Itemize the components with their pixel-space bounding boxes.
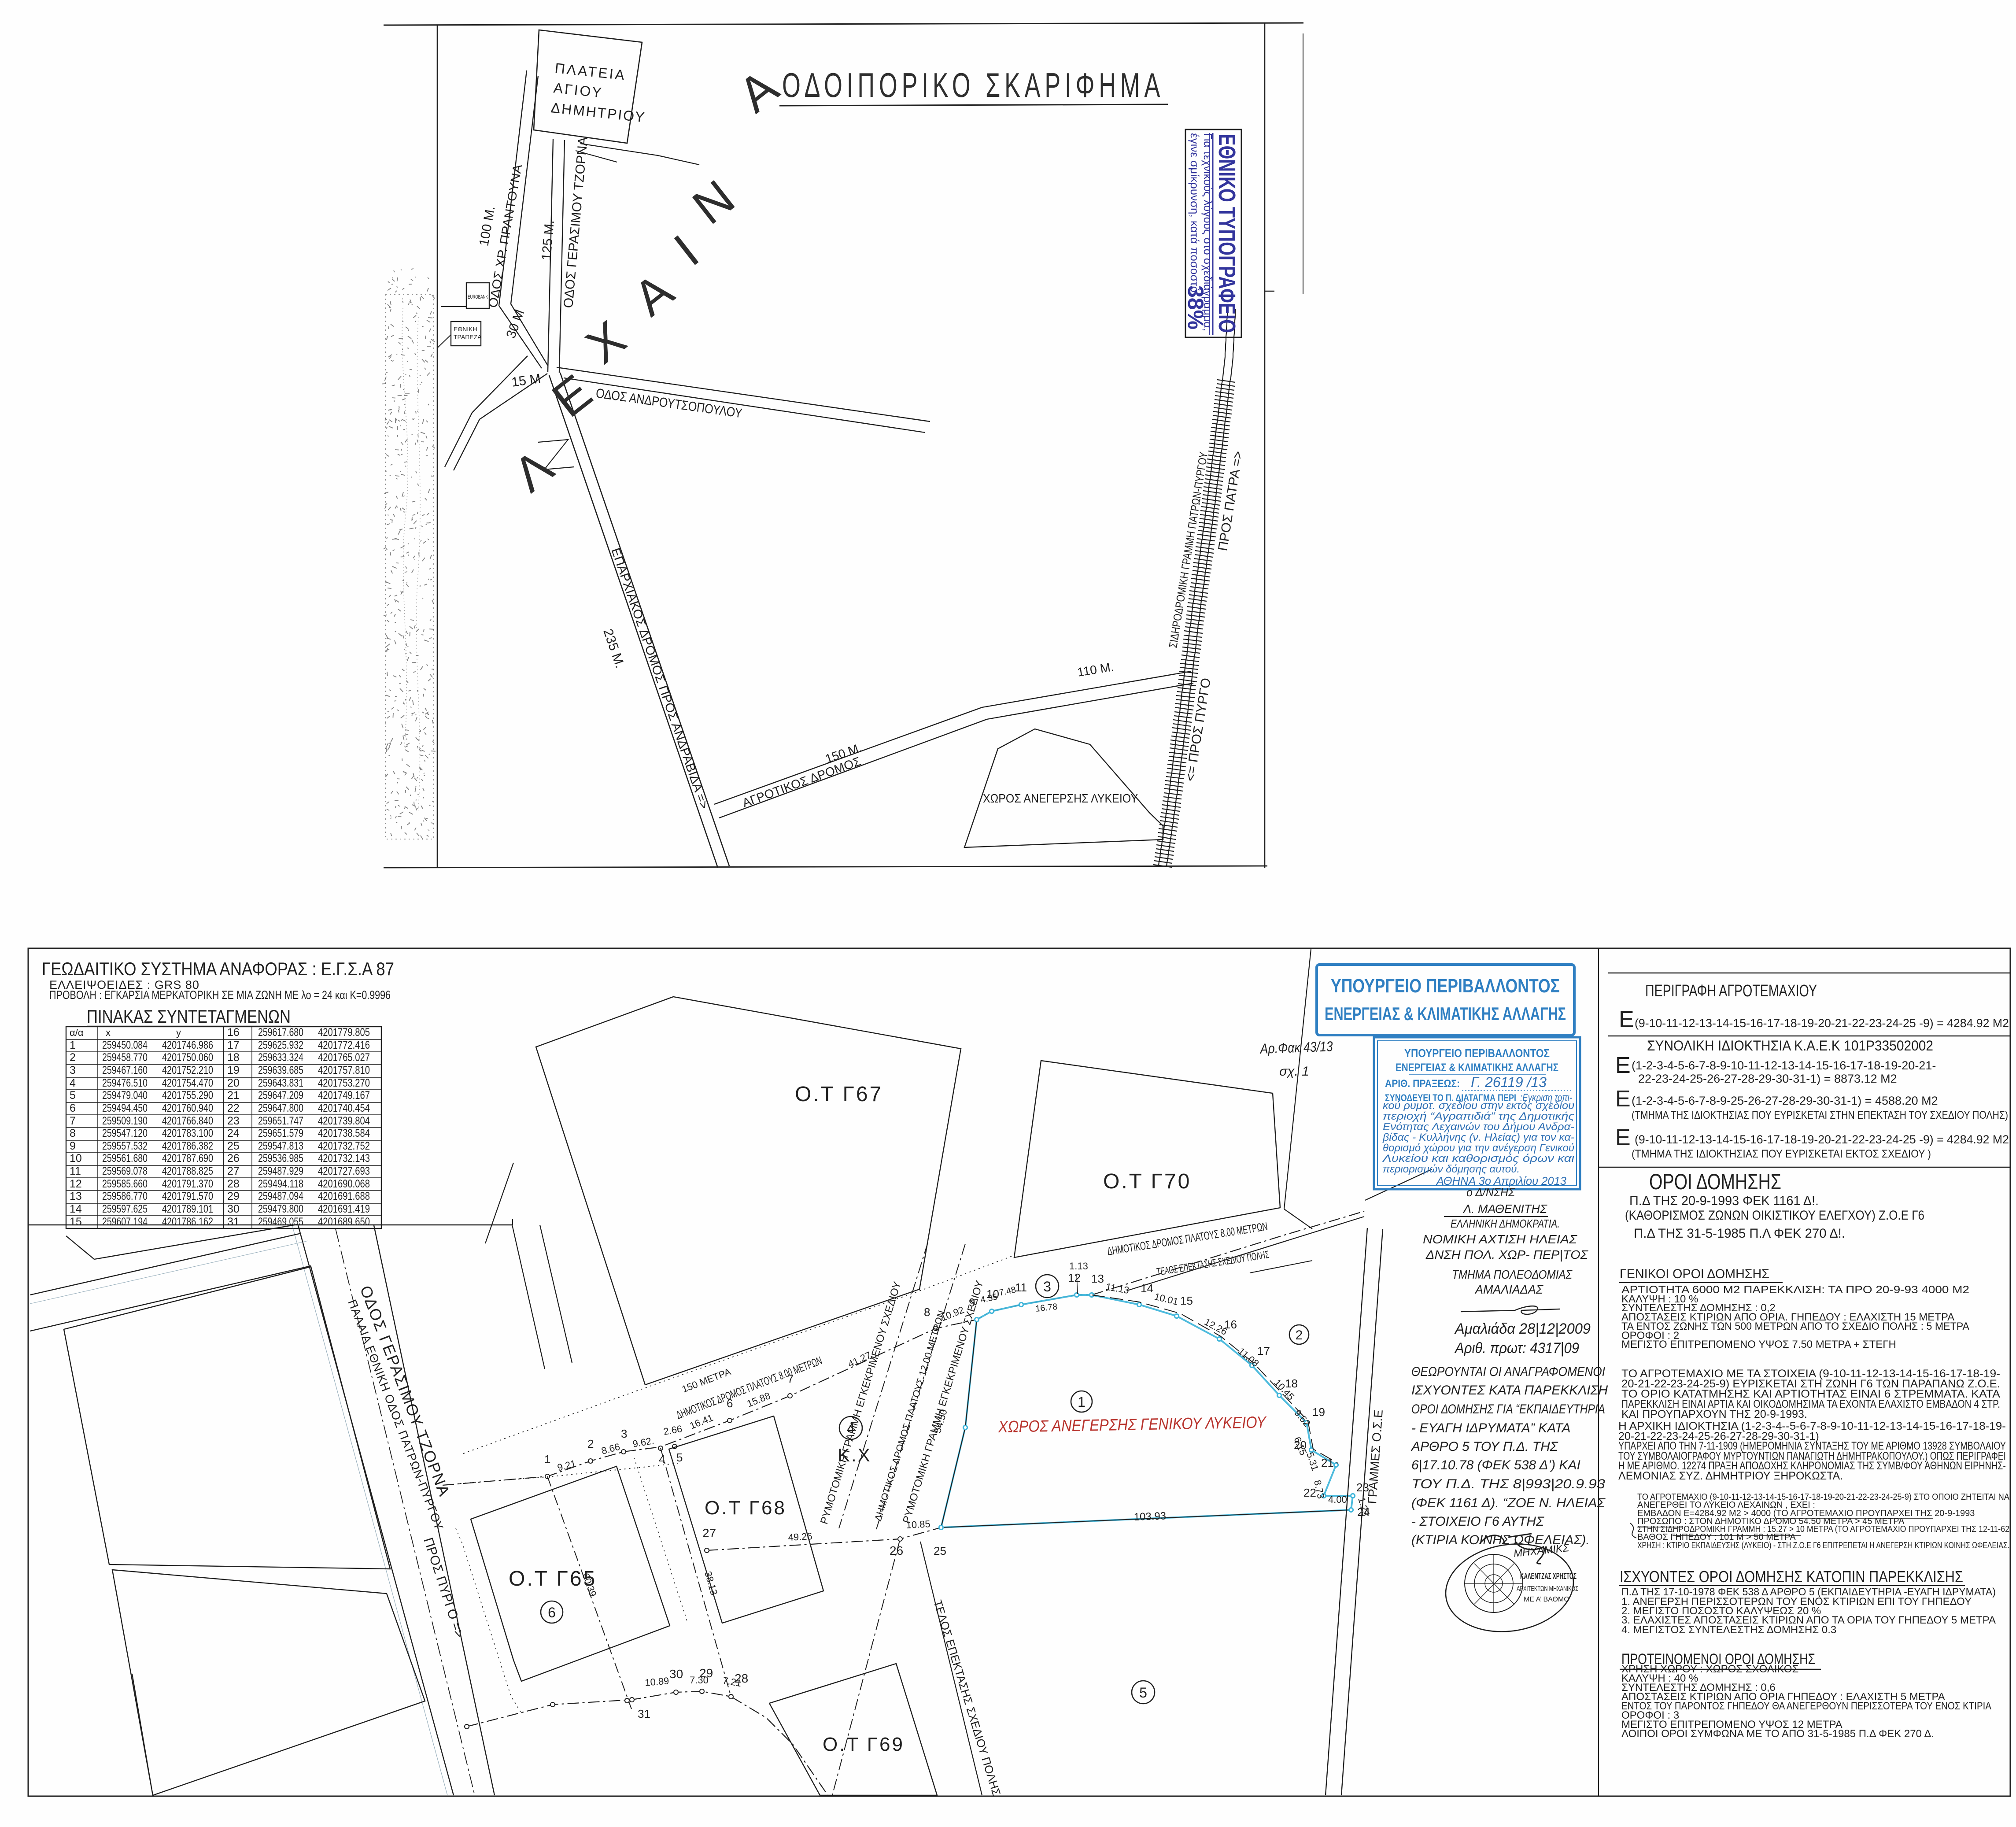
svg-text:259469.055: 259469.055: [258, 1216, 303, 1228]
svg-text:26: 26: [227, 1152, 240, 1165]
svg-text:4201727.693: 4201727.693: [318, 1165, 370, 1177]
svg-text:ΤΡΑΠΕΖΑ: ΤΡΑΠΕΖΑ: [454, 333, 482, 340]
svg-text:29: 29: [699, 1666, 713, 1680]
svg-text:28: 28: [227, 1178, 240, 1190]
svg-text:5: 5: [676, 1451, 683, 1464]
svg-text:27: 27: [227, 1165, 240, 1177]
svg-text:10.89: 10.89: [644, 1675, 669, 1688]
svg-text:6: 6: [727, 1397, 733, 1410]
svg-text:22-23-24-25-26-27-28-29-30-31-: 22-23-24-25-26-27-28-29-30-31-1) = 8873.…: [1638, 1072, 1897, 1085]
svg-text:12: 12: [1068, 1271, 1081, 1284]
svg-text:30: 30: [227, 1203, 240, 1215]
svg-text:ΟΔΟΙΠΟΡΙΚΟ ΣΚΑΡΙΦΗΜΑ: ΟΔΟΙΠΟΡΙΚΟ ΣΚΑΡΙΦΗΜΑ: [782, 66, 1164, 104]
svg-text:26: 26: [890, 1544, 903, 1557]
svg-text:4201750.060: 4201750.060: [162, 1051, 213, 1064]
svg-text:25: 25: [934, 1544, 946, 1557]
svg-text:ΧΩΡΟΣ ΑΝΕΓΕΡΣΗΣ ΛΥΚΕΙΟΥ: ΧΩΡΟΣ ΑΝΕΓΕΡΣΗΣ ΛΥΚΕΙΟΥ: [983, 791, 1138, 805]
svg-text:Π.Δ ΤΗΣ 20-9-1993 ΦΕΚ 1161: Π.Δ ΤΗΣ 20-9-1993 ΦΕΚ 1161 Δ!.: [1629, 1194, 1819, 1208]
svg-text:4201783.100: 4201783.100: [162, 1127, 213, 1139]
svg-text:259467.160: 259467.160: [102, 1064, 148, 1076]
svg-text:ΚΑΛΕΝΤΖΑΣ ΧΡΗΣΤΟΣ: ΚΑΛΕΝΤΖΑΣ ΧΡΗΣΤΟΣ: [1520, 1572, 1577, 1581]
svg-text:259607.194: 259607.194: [102, 1216, 148, 1228]
svg-text:259647.800: 259647.800: [258, 1102, 303, 1114]
svg-text:6: 6: [548, 1605, 556, 1620]
svg-text:23: 23: [227, 1115, 240, 1127]
svg-text:4201787.690: 4201787.690: [162, 1152, 213, 1165]
svg-text:ΛΕΜΟΝΙΑΣ ΣΥΖ. ΔΗΜΗΤΡΙΟΥ ΞΗΡ: ΛΕΜΟΝΙΑΣ ΣΥΖ. ΔΗΜΗΤΡΙΟΥ ΞΗΡΟΚΩΣΤΑ.: [1618, 1470, 1843, 1482]
svg-text:4201772.416: 4201772.416: [318, 1039, 370, 1051]
svg-text:4201786.162: 4201786.162: [162, 1216, 213, 1228]
svg-text:ΓΕΝΙΚΟΙ ΟΡΟΙ ΔΟΜΗΣΗΣ: ΓΕΝΙΚΟΙ ΟΡΟΙ ΔΟΜΗΣΗΣ: [1620, 1267, 1769, 1281]
svg-text:259547.120: 259547.120: [102, 1127, 148, 1139]
svg-text:28: 28: [735, 1672, 748, 1685]
svg-text:EUROBANK: EUROBANK: [468, 294, 488, 300]
svg-text:259458.770: 259458.770: [102, 1051, 148, 1064]
svg-text:Ε: Ε: [1615, 1125, 1631, 1150]
svg-text:259569.078: 259569.078: [102, 1165, 148, 1177]
svg-text:49.26: 49.26: [788, 1531, 812, 1543]
svg-text:Ο.Τ Γ70: Ο.Τ Γ70: [1103, 1170, 1191, 1193]
svg-text:ΠΙΝΑΚΑΣ ΣΥΝΤΕΤΑΓΜΕΝΩΝ: ΠΙΝΑΚΑΣ ΣΥΝΤΕΤΑΓΜΕΝΩΝ: [87, 1006, 291, 1027]
svg-text:7: 7: [70, 1115, 76, 1127]
svg-text:27: 27: [702, 1526, 716, 1540]
svg-text:(ΚΑΘΟΡΙΣΜΟΣ ΖΩΝΩΝ ΟΙΚΙΣΤΙΚΟΥ: (ΚΑΘΟΡΙΣΜΟΣ ΖΩΝΩΝ ΟΙΚΙΣΤΙΚΟΥ ΕΛΕΓΧΟΥ) Ζ.…: [1625, 1208, 1924, 1223]
svg-text:ΧΡΗΣΗ : ΚΤΙΡΙΟ ΕΚΠΑΙΔΕΥΣΗΣ: ΧΡΗΣΗ : ΚΤΙΡΙΟ ΕΚΠΑΙΔΕΥΣΗΣ (ΛΥΚΕΙΟ) - ΣΤ…: [1637, 1541, 2009, 1550]
svg-text:4201691.419: 4201691.419: [318, 1203, 370, 1215]
svg-text:4201786.382: 4201786.382: [162, 1140, 213, 1152]
svg-text:x: x: [106, 1027, 111, 1038]
svg-text:ΕΝΕΡΓΕΙΑΣ & ΚΛΙΜΑΤΙΚΗΣ ΑΛΛΑ: ΕΝΕΡΓΕΙΑΣ & ΚΛΙΜΑΤΙΚΗΣ ΑΛΛΑΓΗΣ: [1325, 1003, 1566, 1024]
svg-text:ΤΟΥ Π.Δ. ΤΗΣ 8|993|20.9.93: ΤΟΥ Π.Δ. ΤΗΣ 8|993|20.9.93: [1411, 1477, 1605, 1491]
svg-text:20: 20: [227, 1077, 240, 1089]
svg-text:11: 11: [70, 1165, 81, 1177]
svg-text:38%: 38%: [1183, 285, 1208, 329]
svg-text:24: 24: [227, 1127, 240, 1139]
svg-text:2: 2: [70, 1051, 76, 1064]
svg-text:103.93: 103.93: [1134, 1510, 1166, 1523]
svg-text:8: 8: [70, 1127, 76, 1139]
svg-text:ΛΟΙΠΟΙ ΟΡΟΙ ΣΥΜΦΩΝΑ ΜΕ ΤΟ: ΛΟΙΠΟΙ ΟΡΟΙ ΣΥΜΦΩΝΑ ΜΕ ΤΟ ΑΠΟ 31-5-1985 …: [1621, 1728, 1934, 1740]
svg-text:Ο.Τ Γ68: Ο.Τ Γ68: [705, 1497, 786, 1519]
svg-text:ΚΑΙ ΠΡΟΥΠΑΡΧΟΥΝ ΤΗΣ 20-9-19: ΚΑΙ ΠΡΟΥΠΑΡΧΟΥΝ ΤΗΣ 20-9-1993.: [1621, 1408, 1807, 1420]
svg-text:ΓΕΩΔΑΙΤΙΚΟ ΣΥΣΤΗΜΑ ΑΝΑΦΟΡΑΣ: ΓΕΩΔΑΙΤΙΚΟ ΣΥΣΤΗΜΑ ΑΝΑΦΟΡΑΣ : Ε.Γ.Σ.Α 87: [42, 958, 394, 979]
svg-text:περιοχή “Αγραπιδιά” της Δημο: περιοχή “Αγραπιδιά” της Δημοτικής: [1383, 1110, 1574, 1122]
svg-text:259651.747: 259651.747: [258, 1115, 303, 1127]
svg-text:ΘΕΩΡΟΥΝΤΑΙ ΟΙ ΑΝΑΓΡΑΦΟΜΕΝΟΙ: ΘΕΩΡΟΥΝΤΑΙ ΟΙ ΑΝΑΓΡΑΦΟΜΕΝΟΙ: [1411, 1365, 1605, 1379]
svg-text:(9-10-11-12-13-14-15-16-17-18-: (9-10-11-12-13-14-15-16-17-18-19-20-21-2…: [1635, 1017, 2009, 1030]
svg-text:ο Δ/ΝΣΗΣ: ο Δ/ΝΣΗΣ: [1466, 1186, 1515, 1199]
svg-text:259450.084: 259450.084: [102, 1039, 148, 1051]
svg-text:9: 9: [969, 1296, 975, 1309]
svg-text:259494.450: 259494.450: [102, 1102, 148, 1114]
svg-text:ΤΜΗΜΑ ΠΟΛΕΟΔΟΜΙΑΣ: ΤΜΗΜΑ ΠΟΛΕΟΔΟΜΙΑΣ: [1452, 1268, 1573, 1281]
svg-text:Λ. ΜΑΘΕΝΙΤΗΣ: Λ. ΜΑΘΕΝΙΤΗΣ: [1462, 1202, 1547, 1216]
svg-text:259597.625: 259597.625: [102, 1203, 148, 1215]
svg-text:259487.929: 259487.929: [258, 1165, 303, 1177]
svg-text:Αριθ. πρωτ: 4317|09: Αριθ. πρωτ: 4317|09: [1454, 1340, 1579, 1357]
svg-text:21: 21: [1321, 1456, 1334, 1469]
svg-text:22: 22: [227, 1102, 240, 1114]
svg-text:Ε: Ε: [1615, 1086, 1631, 1112]
svg-text:Π.Δ ΤΗΣ 31-5-1985 Π.Λ ΦΕΚ: Π.Δ ΤΗΣ 31-5-1985 Π.Λ ΦΕΚ 270 Δ!.: [1634, 1226, 1845, 1241]
svg-text:15: 15: [70, 1216, 82, 1228]
svg-text:Ε: Ε: [1615, 1053, 1631, 1078]
svg-text:5: 5: [1139, 1685, 1147, 1701]
svg-text:Αμαλιάδα 28|12|2009: Αμαλιάδα 28|12|2009: [1454, 1320, 1591, 1337]
svg-text:(9-10-11-12-13-14-15-16-17-18-: (9-10-11-12-13-14-15-16-17-18-19-20-21-2…: [1635, 1133, 2009, 1146]
svg-text:(1-2-3-4-5-6-7-8-9-25-26-27-28: (1-2-3-4-5-6-7-8-9-25-26-27-28-29-30-31-…: [1632, 1094, 1938, 1107]
svg-text:259639.685: 259639.685: [258, 1064, 303, 1076]
svg-text:4. ΜΕΓΙΣΤΟΣ ΣΥΝΤΕΛΕΣΤΗΣ ΔΟΜ: 4. ΜΕΓΙΣΤΟΣ ΣΥΝΤΕΛΕΣΤΗΣ ΔΟΜΗΣΗΣ 0.3: [1621, 1624, 1836, 1636]
svg-text:1: 1: [1078, 1394, 1086, 1410]
svg-text:2: 2: [587, 1437, 594, 1450]
svg-text:25: 25: [227, 1140, 240, 1152]
svg-text:Ο.Τ Γ69: Ο.Τ Γ69: [823, 1734, 905, 1755]
svg-text:259617.680: 259617.680: [258, 1026, 303, 1039]
svg-text:ΑΜΑΛΙΑΔΑΣ: ΑΜΑΛΙΑΔΑΣ: [1474, 1283, 1543, 1296]
svg-text:259479.800: 259479.800: [258, 1203, 303, 1215]
svg-text:4201789.101: 4201789.101: [162, 1203, 213, 1215]
svg-text:4201738.584: 4201738.584: [318, 1127, 370, 1139]
svg-text:ΕΝΕΡΓΕΙΑΣ & ΚΛΙΜΑΤΙΚΗΣ ΑΛΛΑ: ΕΝΕΡΓΕΙΑΣ & ΚΛΙΜΑΤΙΚΗΣ ΑΛΛΑΓΗΣ: [1396, 1061, 1558, 1074]
svg-text:9: 9: [70, 1140, 76, 1152]
svg-text:ΜΕ Α’ ΒΑΘΜΟ: ΜΕ Α’ ΒΑΘΜΟ: [1524, 1596, 1569, 1603]
svg-text:Ο.Τ Γ67: Ο.Τ Γ67: [795, 1083, 883, 1106]
svg-text:y: y: [176, 1027, 181, 1038]
svg-text:5: 5: [70, 1089, 76, 1102]
svg-text:α/α: α/α: [70, 1027, 84, 1038]
svg-text:3: 3: [621, 1427, 627, 1440]
svg-text:2: 2: [1296, 1328, 1303, 1343]
svg-text:31: 31: [227, 1216, 240, 1228]
svg-text:Γ. 26119 /13: Γ. 26119 /13: [1471, 1074, 1547, 1090]
svg-text:259557.532: 259557.532: [102, 1140, 148, 1152]
svg-text:17: 17: [227, 1039, 240, 1051]
svg-text:Αρ.Φακ 43/13: Αρ.Φακ 43/13: [1259, 1038, 1333, 1057]
svg-text:4201760.940: 4201760.940: [162, 1102, 213, 1114]
svg-text:14: 14: [1141, 1282, 1153, 1295]
svg-text:(ΤΜΗΜΑ ΤΗΣ ΙΔΙΟΚΤΗΣΙΑΣ ΠΟΥ: (ΤΜΗΜΑ ΤΗΣ ΙΔΙΟΚΤΗΣΙΑΣ ΠΟΥ ΕΥΡΙΣΚΕΤΑΙ ΣΤ…: [1632, 1109, 2008, 1121]
svg-text:4201765.027: 4201765.027: [318, 1051, 370, 1064]
svg-text:4.00: 4.00: [1328, 1494, 1347, 1505]
svg-text:259585.660: 259585.660: [102, 1178, 148, 1190]
svg-text:(ΦΕΚ 1161 Δ). “ΖΟΕ Ν. ΗΛΕΙΑ: (ΦΕΚ 1161 Δ). “ΖΟΕ Ν. ΗΛΕΙΑΣ: [1411, 1496, 1606, 1510]
svg-text:(ΤΜΗΜΑ ΤΗΣ ΙΔΙΟΚΤΗΣΙΑΣ ΠΟΥ: (ΤΜΗΜΑ ΤΗΣ ΙΔΙΟΚΤΗΣΙΑΣ ΠΟΥ ΕΥΡΙΣΚΕΤΑΙ ΕΚ…: [1632, 1148, 1931, 1160]
svg-text:11: 11: [1015, 1281, 1027, 1294]
svg-text:ΑΡΧΙΤΕΚΤΩΝ ΜΗΧΑΝΙΚΟΣ: ΑΡΧΙΤΕΚΤΩΝ ΜΗΧΑΝΙΚΟΣ: [1517, 1585, 1578, 1593]
svg-text:30: 30: [669, 1667, 683, 1681]
svg-text:ΠΡΟΒΟΛΗ : ΕΓΚΑΡΣΙΑ ΜΕΡΚΑΤΟΡ: ΠΡΟΒΟΛΗ : ΕΓΚΑΡΣΙΑ ΜΕΡΚΑΤΟΡΙΚΗ ΣΕ ΜΙΑ ΖΩ…: [49, 988, 391, 1002]
svg-text:4201752.210: 4201752.210: [162, 1064, 213, 1076]
svg-text:Λυκείου και καθορισμός όρω: Λυκείου και καθορισμός όρων και: [1382, 1153, 1574, 1165]
svg-text:13: 13: [1091, 1272, 1104, 1285]
svg-text:259547.813: 259547.813: [258, 1140, 303, 1152]
svg-text:259536.985: 259536.985: [258, 1152, 303, 1165]
svg-text:4201754.470: 4201754.470: [162, 1077, 213, 1089]
svg-text:4201732.143: 4201732.143: [318, 1152, 370, 1165]
svg-text:ΙΣΧΥΟΝΤΕΣ ΟΡΟΙ ΔΟΜΗΣΗΣ ΚΑΤΟ: ΙΣΧΥΟΝΤΕΣ ΟΡΟΙ ΔΟΜΗΣΗΣ ΚΑΤΟΠΙΝ ΠΑΡΕΚΚΛΙΣ…: [1620, 1568, 1963, 1586]
svg-text:σχ. 1: σχ. 1: [1279, 1064, 1309, 1079]
svg-text:κού ρυμοτ. σχεδίου στην εκτός: κού ρυμοτ. σχεδίου στην εκτός σχεδίου: [1383, 1100, 1574, 1112]
svg-text:4201689.650: 4201689.650: [318, 1216, 370, 1228]
svg-text:15: 15: [1180, 1294, 1193, 1307]
svg-text:259651.579: 259651.579: [258, 1127, 303, 1139]
svg-text:259476.510: 259476.510: [102, 1077, 148, 1089]
svg-text:ΜΕΓΙΣΤΟ ΕΠΙΤΡΕΠΟΜΕΝΟ ΥΨΟΣ 7: ΜΕΓΙΣΤΟ ΕΠΙΤΡΕΠΟΜΕΝΟ ΥΨΟΣ 7.50 ΜΕΤΡΑ + Σ…: [1621, 1339, 1896, 1350]
svg-text:259586.770: 259586.770: [102, 1190, 148, 1202]
svg-text:3: 3: [1043, 1279, 1051, 1294]
svg-text:4201791.370: 4201791.370: [162, 1178, 213, 1190]
svg-text:29: 29: [227, 1190, 240, 1202]
svg-text:περιορισμών δόμησης αυτού.: περιορισμών δόμησης αυτού.: [1383, 1163, 1520, 1175]
svg-text:10: 10: [70, 1152, 82, 1165]
svg-text:(1-2-3-4-5-6-7-8-9-10-11-12-13: (1-2-3-4-5-6-7-8-9-10-11-12-13-14-15-16-…: [1632, 1059, 1936, 1072]
svg-text:ΟΡΟΙ ΔΟΜΗΣΗΣ: ΟΡΟΙ ΔΟΜΗΣΗΣ: [1649, 1169, 1781, 1194]
svg-text:Ε: Ε: [1619, 1007, 1634, 1032]
svg-text:14: 14: [70, 1203, 82, 1215]
svg-text:7: 7: [787, 1372, 794, 1385]
svg-text:259633.324: 259633.324: [258, 1051, 303, 1064]
svg-text:ΠΕΡΙΓΡΑΦΗ ΑΓΡΟΤΕΜΑΧΙΟΥ: ΠΕΡΙΓΡΑΦΗ ΑΓΡΟΤΕΜΑΧΙΟΥ: [1645, 982, 1817, 1000]
svg-text:3: 3: [70, 1064, 76, 1076]
svg-text:259561.680: 259561.680: [102, 1152, 148, 1165]
svg-text:6|17.10.78 (ΦΕΚ 538 Δ’) ΚΑΙ: 6|17.10.78 (ΦΕΚ 538 Δ’) ΚΑΙ: [1411, 1458, 1580, 1472]
svg-text:ΔΝΣΗ ΠΟΛ. ΧΩΡ- ΠΕΡ|ΤΟΣ: ΔΝΣΗ ΠΟΛ. ΧΩΡ- ΠΕΡ|ΤΟΣ: [1425, 1248, 1588, 1261]
svg-text:ΟΡΟΙ ΔΟΜΗΣΗΣ ΓΙΑ “ΕΚΠΑΙΔΕΥΤΗ: ΟΡΟΙ ΔΟΜΗΣΗΣ ΓΙΑ “ΕΚΠΑΙΔΕΥΤΗΡΙΑ: [1411, 1402, 1605, 1416]
svg-text:ΕΘΝΙΚΟ ΤΥΠΟΓΡΑΦΕΙΟ: ΕΘΝΙΚΟ ΤΥΠΟΓΡΑΦΕΙΟ: [1214, 134, 1240, 333]
svg-text:ΥΠΟΥΡΓΕΙΟ ΠΕΡΙΒΑΛΛΟΝΤΟΣ: ΥΠΟΥΡΓΕΙΟ ΠΕΡΙΒΑΛΛΟΝΤΟΣ: [1404, 1047, 1550, 1060]
svg-text:θορισμό χώρου για την ανέγερ: θορισμό χώρου για την ανέγερση Γενικού: [1383, 1142, 1574, 1154]
svg-text:4201753.270: 4201753.270: [318, 1077, 370, 1089]
svg-text:έγινε σμίκρυνση, κατά ποσοστό: έγινε σμίκρυνση, κατά ποσοστό: [1188, 133, 1201, 292]
svg-text:10.85: 10.85: [906, 1518, 930, 1531]
svg-text:259643.831: 259643.831: [258, 1077, 303, 1089]
svg-text:16: 16: [227, 1026, 240, 1039]
svg-text:4201746.986: 4201746.986: [162, 1039, 213, 1051]
svg-text:4201732.752: 4201732.752: [318, 1140, 370, 1152]
svg-text:4201757.810: 4201757.810: [318, 1064, 370, 1076]
svg-text:21: 21: [227, 1089, 240, 1102]
svg-text:ΕΘΝΙΚΗ: ΕΘΝΙΚΗ: [454, 325, 477, 333]
svg-text:1.13: 1.13: [1069, 1261, 1088, 1272]
svg-text:259509.190: 259509.190: [102, 1115, 148, 1127]
svg-text:ΑΡΘΡΟ 5 ΤΟΥ Π.Δ. ΤΗΣ: ΑΡΘΡΟ 5 ΤΟΥ Π.Δ. ΤΗΣ: [1410, 1439, 1558, 1454]
svg-text:ΥΠΟΥΡΓΕΙΟ ΠΕΡΙΒΑΛΛΟΝΤΟΣ: ΥΠΟΥΡΓΕΙΟ ΠΕΡΙΒΑΛΛΟΝΤΟΣ: [1331, 975, 1560, 997]
svg-text:259647.209: 259647.209: [258, 1089, 303, 1102]
svg-text:Ενότητας Λεχαινών του Δήμου Α: Ενότητας Λεχαινών του Δήμου Ανδρα-: [1383, 1121, 1574, 1133]
svg-text:ΕΛΛΗΝΙΚΗ ΔΗΜΟΚΡΑΤΙΑ.: ΕΛΛΗΝΙΚΗ ΔΗΜΟΚΡΑΤΙΑ.: [1451, 1217, 1560, 1230]
svg-text:13: 13: [70, 1190, 82, 1202]
svg-text:4201766.840: 4201766.840: [162, 1115, 213, 1127]
svg-text:ΣΥΝΟΛΙΚΗ ΙΔΙΟΚΤΗΣΙΑ Κ.Α.Ε.: ΣΥΝΟΛΙΚΗ ΙΔΙΟΚΤΗΣΙΑ Κ.Α.Ε.Κ 101Ρ33502002: [1647, 1038, 1933, 1054]
svg-text:4: 4: [70, 1077, 76, 1089]
svg-text:4201691.688: 4201691.688: [318, 1190, 370, 1202]
svg-text:4201690.068: 4201690.068: [318, 1178, 370, 1190]
svg-text:8: 8: [924, 1306, 930, 1319]
svg-text:4201791.570: 4201791.570: [162, 1190, 213, 1202]
svg-text:12: 12: [70, 1178, 82, 1190]
svg-text:259479.040: 259479.040: [102, 1089, 148, 1102]
svg-text:259494.118: 259494.118: [258, 1178, 303, 1190]
svg-text:1: 1: [70, 1039, 76, 1051]
svg-text:18: 18: [227, 1051, 240, 1064]
svg-text:19: 19: [1312, 1405, 1325, 1419]
svg-text:1: 1: [544, 1453, 550, 1466]
svg-text:17: 17: [1257, 1344, 1270, 1357]
svg-text:6: 6: [70, 1102, 76, 1114]
svg-text:4201788.825: 4201788.825: [162, 1165, 213, 1177]
svg-text:- ΕΥΑΓΗ ΙΔΡΥΜΑΤΑ” ΚΑΤΑ: - ΕΥΑΓΗ ΙΔΡΥΜΑΤΑ” ΚΑΤΑ: [1411, 1421, 1570, 1435]
svg-text:4201755.290: 4201755.290: [162, 1089, 213, 1102]
svg-text:259487.094: 259487.094: [258, 1190, 303, 1202]
svg-text:4201779.805: 4201779.805: [318, 1026, 370, 1039]
svg-text:259625.932: 259625.932: [258, 1039, 303, 1051]
svg-text:ΝΟΜΙΚΗ ΑΧΤΙΣΗ ΗΛΕΙΑΣ: ΝΟΜΙΚΗ ΑΧΤΙΣΗ ΗΛΕΙΑΣ: [1423, 1232, 1577, 1246]
svg-text:ΙΣΧΥΟΝΤΕΣ ΚΑΤΑ ΠΑΡΕΚΚΛΙΣΗ: ΙΣΧΥΟΝΤΕΣ ΚΑΤΑ ΠΑΡΕΚΚΛΙΣΗ: [1411, 1383, 1608, 1398]
svg-text:βίδας - Κυλλήνης (ν. Ηλείας) γ: βίδας - Κυλλήνης (ν. Ηλείας) για τον κα-: [1382, 1132, 1574, 1143]
svg-text:31: 31: [638, 1707, 650, 1720]
svg-text:19: 19: [227, 1064, 240, 1076]
svg-text:- ΣΤΟΙΧΕΙΟ Γ6 ΑΥΤΗΣ: - ΣΤΟΙΧΕΙΟ Γ6 ΑΥΤΗΣ: [1411, 1514, 1544, 1529]
svg-text:ΑΡΙΘ. ΠΡΑΞΕΩΣ:: ΑΡΙΘ. ΠΡΑΞΕΩΣ:: [1385, 1078, 1460, 1090]
svg-text:4201740.454: 4201740.454: [318, 1102, 370, 1114]
svg-text:4201749.167: 4201749.167: [318, 1089, 370, 1102]
svg-text:4201739.804: 4201739.804: [318, 1115, 370, 1127]
